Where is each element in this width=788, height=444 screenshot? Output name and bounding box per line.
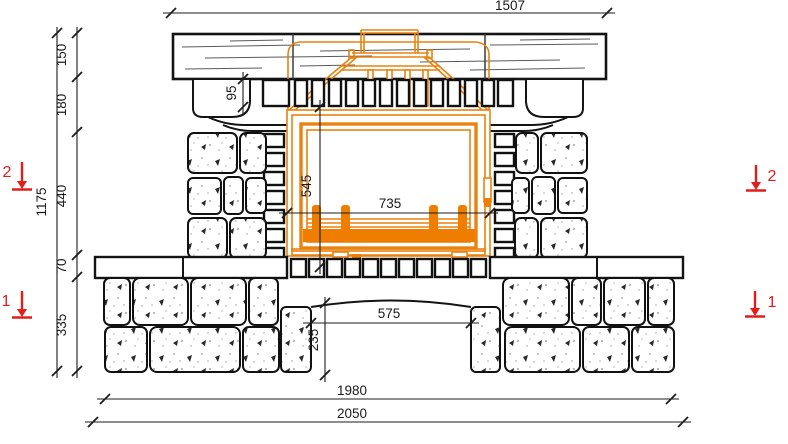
section-1-right-label: 1: [768, 294, 777, 311]
section-marker-1-left: 1: [2, 291, 32, 318]
down-arrow-icon: [751, 182, 761, 190]
grille-slat: [263, 80, 289, 106]
down-arrow-icon: [750, 308, 760, 316]
section-marker-2-left: 2: [3, 162, 32, 190]
section-marker-2-right: 2: [746, 165, 777, 191]
fireplace-elevation-drawing: 1507 1175 150 180 440 70 335 95 545 735: [0, 0, 788, 444]
stone: [188, 133, 237, 173]
dim-top-width: 1507: [495, 0, 525, 13]
hearth-slab: [95, 257, 683, 278]
left-corbel: [193, 79, 250, 117]
dim-base-height: 335: [54, 314, 69, 337]
base-stones: [104, 278, 674, 372]
firebox-insert: [287, 110, 491, 258]
dim-overall-height: 1175: [34, 187, 49, 216]
down-arrow-icon: [17, 309, 27, 317]
section-2-right-label: 2: [768, 168, 777, 185]
dim-grille-height: 95: [224, 85, 239, 100]
section-1-left-label: 1: [2, 293, 11, 310]
dim-niche-width: 575: [378, 306, 401, 321]
dim-beam-height: 150: [54, 44, 69, 67]
section-2-left-label: 2: [3, 164, 12, 181]
section-marker-1-right: 1: [745, 291, 777, 317]
dim-door-width: 735: [379, 196, 402, 211]
right-arch-jamb: [471, 307, 500, 372]
dim-door-height: 545: [299, 175, 314, 198]
dim-frieze-height: 180: [54, 94, 69, 117]
dim-overall-width: 2050: [337, 406, 367, 421]
dim-footprint-width: 1980: [337, 383, 367, 398]
dim-bench-slab: 70: [54, 258, 69, 273]
right-corbel: [526, 79, 583, 117]
grate-band: [303, 229, 475, 242]
drawing-canvas: 1507 1175 150 180 440 70 335 95 545 735: [0, 0, 788, 444]
dim-firebox-zone: 440: [54, 185, 69, 208]
down-arrow-icon: [17, 181, 27, 189]
top-vent-grille: [263, 80, 513, 106]
dim-niche-height: 235: [306, 329, 321, 352]
